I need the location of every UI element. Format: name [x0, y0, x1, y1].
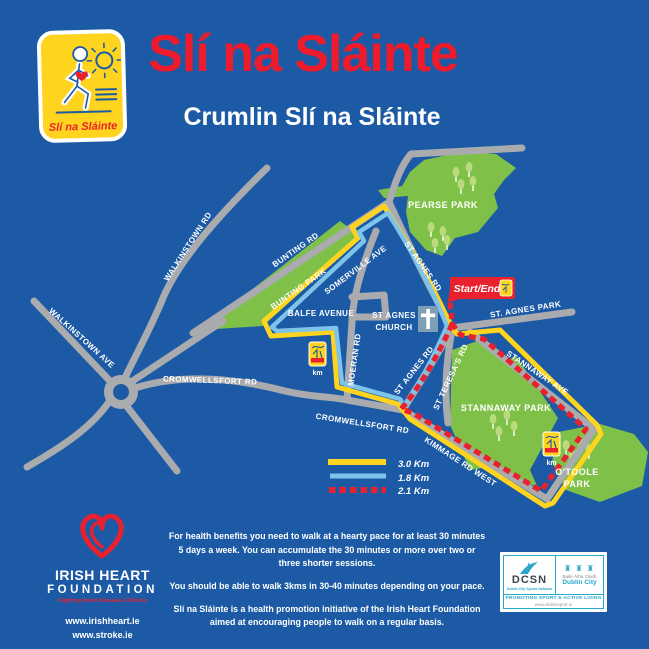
start-end-badge: Start/End — [448, 277, 515, 303]
label-cromwellsfort-rd-east: CROMWELLSFORT RD — [315, 412, 410, 436]
dublin-castles-icon: ♜ ♜ ♜ — [564, 565, 595, 573]
dcsn-promo-text: PROMOTING SPORT & ACTIVE LIVING — [504, 596, 603, 601]
km-marker-2-label: km — [546, 460, 556, 467]
ihf-heart-icon — [30, 508, 175, 560]
dcsn-caption: Dublin City Sports Network — [507, 587, 552, 591]
irish-heart-foundation-block: IRISH HEART FOUNDATION Fighting Heart Di… — [30, 508, 175, 642]
ihf-name-line2: FOUNDATION — [30, 584, 175, 596]
label-otoole-park-1: O'TOOLE — [555, 467, 598, 477]
start-end-label: Start/End — [454, 283, 501, 295]
dcsn-bird-icon — [518, 561, 540, 575]
ihf-tagline: Fighting Heart Disease & Stroke — [30, 598, 175, 604]
church-icon — [418, 306, 438, 332]
km-marker-1-label: km — [312, 370, 322, 377]
ihf-url-irishheart: www.irishheart.ie — [30, 615, 175, 629]
road-walkinstown-rd — [124, 168, 267, 380]
dcsn-url: www.dublinsport.ie — [504, 602, 603, 607]
legend-swatch-yellow — [328, 459, 386, 465]
legend-swatch-blue — [330, 474, 386, 479]
ihf-url-stroke: www.stroke.ie — [30, 629, 175, 643]
label-st-agnes-church-1: ST AGNES — [372, 311, 416, 320]
km-marker-1: km — [309, 342, 326, 377]
health-info-text: For health benefits you need to walk at … — [168, 530, 486, 639]
dcsn-name: DCSN — [512, 575, 547, 586]
label-otoole-park-2: PARK — [564, 479, 591, 489]
road-spur-se — [125, 404, 177, 471]
legend-label-3km: 3.0 Km — [398, 459, 430, 470]
legend-label-2-1km: 2.1 Km — [397, 486, 430, 497]
page-title: Slí na Sláinte — [0, 24, 606, 84]
label-pearse-park: PEARSE PARK — [408, 200, 478, 210]
paragraph-3: Slí na Sláinte is a health promotion ini… — [168, 603, 486, 630]
dcsn-logo-block: DCSN Dublin City Sports Network ♜ ♜ ♜ Ba… — [500, 552, 607, 612]
roundabout — [109, 380, 134, 405]
dublin-city-name: Dublin City — [562, 579, 596, 586]
paragraph-2: You should be able to walk 3kms in 30-40… — [168, 580, 486, 594]
paragraph-1: For health benefits you need to walk at … — [168, 530, 486, 571]
label-walkinstown-ave: WALKINSTOWN AVE — [47, 306, 116, 370]
label-cromwellsfort-rd-west: CROMWELLSFORT RD — [163, 374, 258, 386]
label-balfe-avenue: BALFE AVENUE — [288, 309, 354, 318]
road-spur-block-1 — [352, 295, 384, 297]
legend-label-1-8km: 1.8 Km — [398, 473, 430, 484]
route-red-startend-spur — [450, 303, 452, 320]
label-stannaway-park: STANNAWAY PARK — [461, 403, 551, 413]
road-walkinstown-ave — [34, 301, 110, 381]
label-walkinstown-rd: WALKINSTOWN RD — [162, 210, 213, 282]
page-subtitle: Crumlin Slí na Sláinte — [0, 103, 624, 132]
ihf-name-line1: IRISH HEART — [30, 567, 175, 583]
label-st-agnes-church-2: CHURCH — [375, 323, 412, 332]
road-spur-sw — [27, 399, 111, 467]
map-legend: 3.0 Km 1.8 Km 2.1 Km — [328, 459, 430, 497]
poster: { "header": { "title": "Slí na Sláinte",… — [0, 0, 649, 649]
